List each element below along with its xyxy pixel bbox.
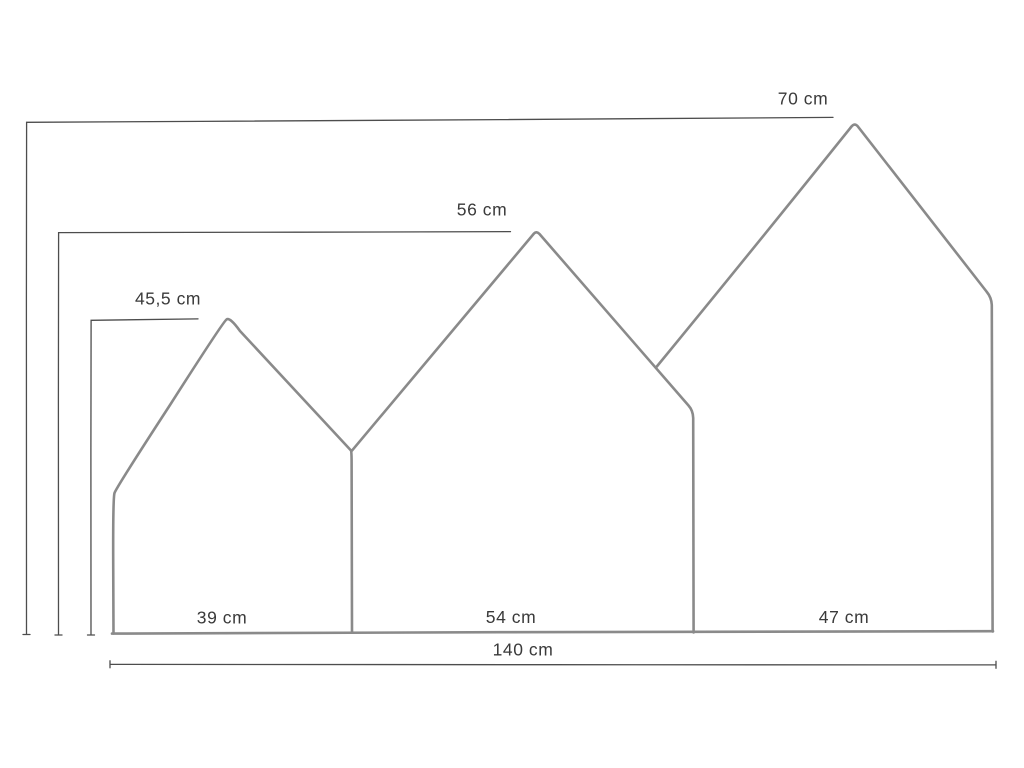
svg-text:54 cm: 54 cm	[486, 607, 536, 627]
svg-text:39 cm: 39 cm	[197, 608, 247, 628]
svg-text:70 cm: 70 cm	[778, 89, 828, 109]
svg-text:47 cm: 47 cm	[819, 607, 869, 627]
svg-text:45,5 cm: 45,5 cm	[135, 289, 201, 309]
svg-text:140 cm: 140 cm	[493, 640, 554, 660]
svg-text:56 cm: 56 cm	[457, 200, 507, 220]
